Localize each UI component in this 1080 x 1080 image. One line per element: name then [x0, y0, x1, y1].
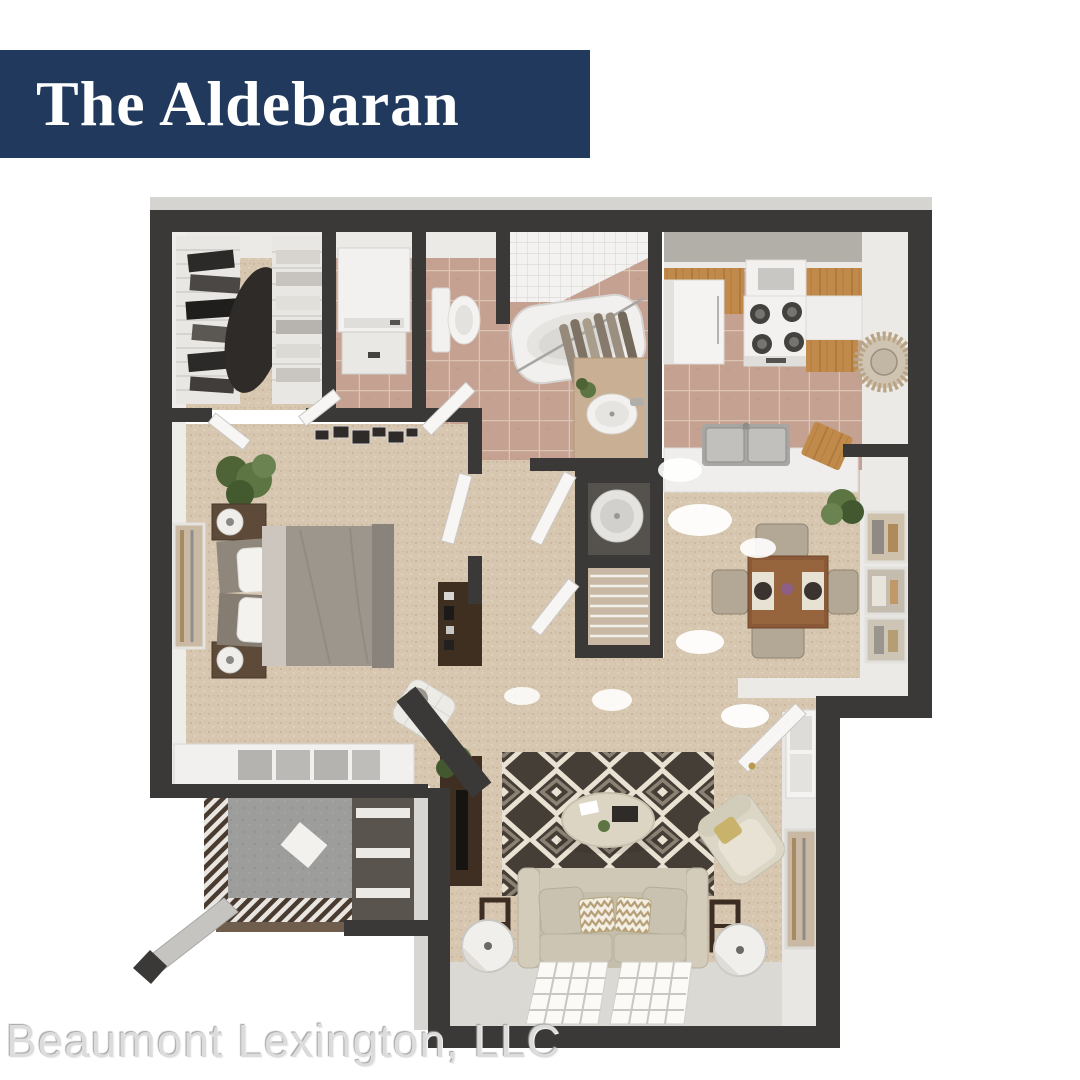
lower-cabinets-right [806, 340, 858, 372]
bedroom-wall-art [174, 524, 204, 648]
watermark-text: Beaumont Lexington, LLC [6, 1014, 561, 1068]
linen-closet [588, 568, 650, 645]
chevron-pillow [615, 897, 652, 934]
door-knob [749, 763, 756, 770]
toilet-tank [432, 288, 450, 352]
double-sink [702, 423, 790, 467]
floor-lamp-left [462, 920, 514, 972]
entry-half-wall [738, 678, 930, 698]
floor-plan-rendering [0, 0, 1080, 1080]
floor-window-light-right [610, 962, 692, 1024]
plan-title: The Aldebaran [36, 67, 460, 141]
table-vase [781, 583, 793, 595]
sofa [518, 868, 708, 968]
floor-plan-image: The Aldebaran Beaumont Lexington, LLC [0, 0, 1080, 1080]
patio-railing-left [204, 798, 228, 910]
chevron-pillow [579, 897, 616, 934]
title-banner: The Aldebaran [0, 50, 590, 158]
floor-lamp-right [714, 924, 766, 976]
coffee-table [562, 793, 654, 847]
sliding-glass-door [174, 744, 414, 786]
water-heater-closet [588, 483, 650, 555]
sofa-cushion [538, 887, 585, 936]
faucet [630, 398, 644, 406]
entry-wall-art [786, 830, 816, 948]
round-wall-decor [858, 336, 910, 388]
entry [786, 710, 816, 948]
television [456, 790, 468, 870]
laundry-closet [338, 248, 410, 374]
